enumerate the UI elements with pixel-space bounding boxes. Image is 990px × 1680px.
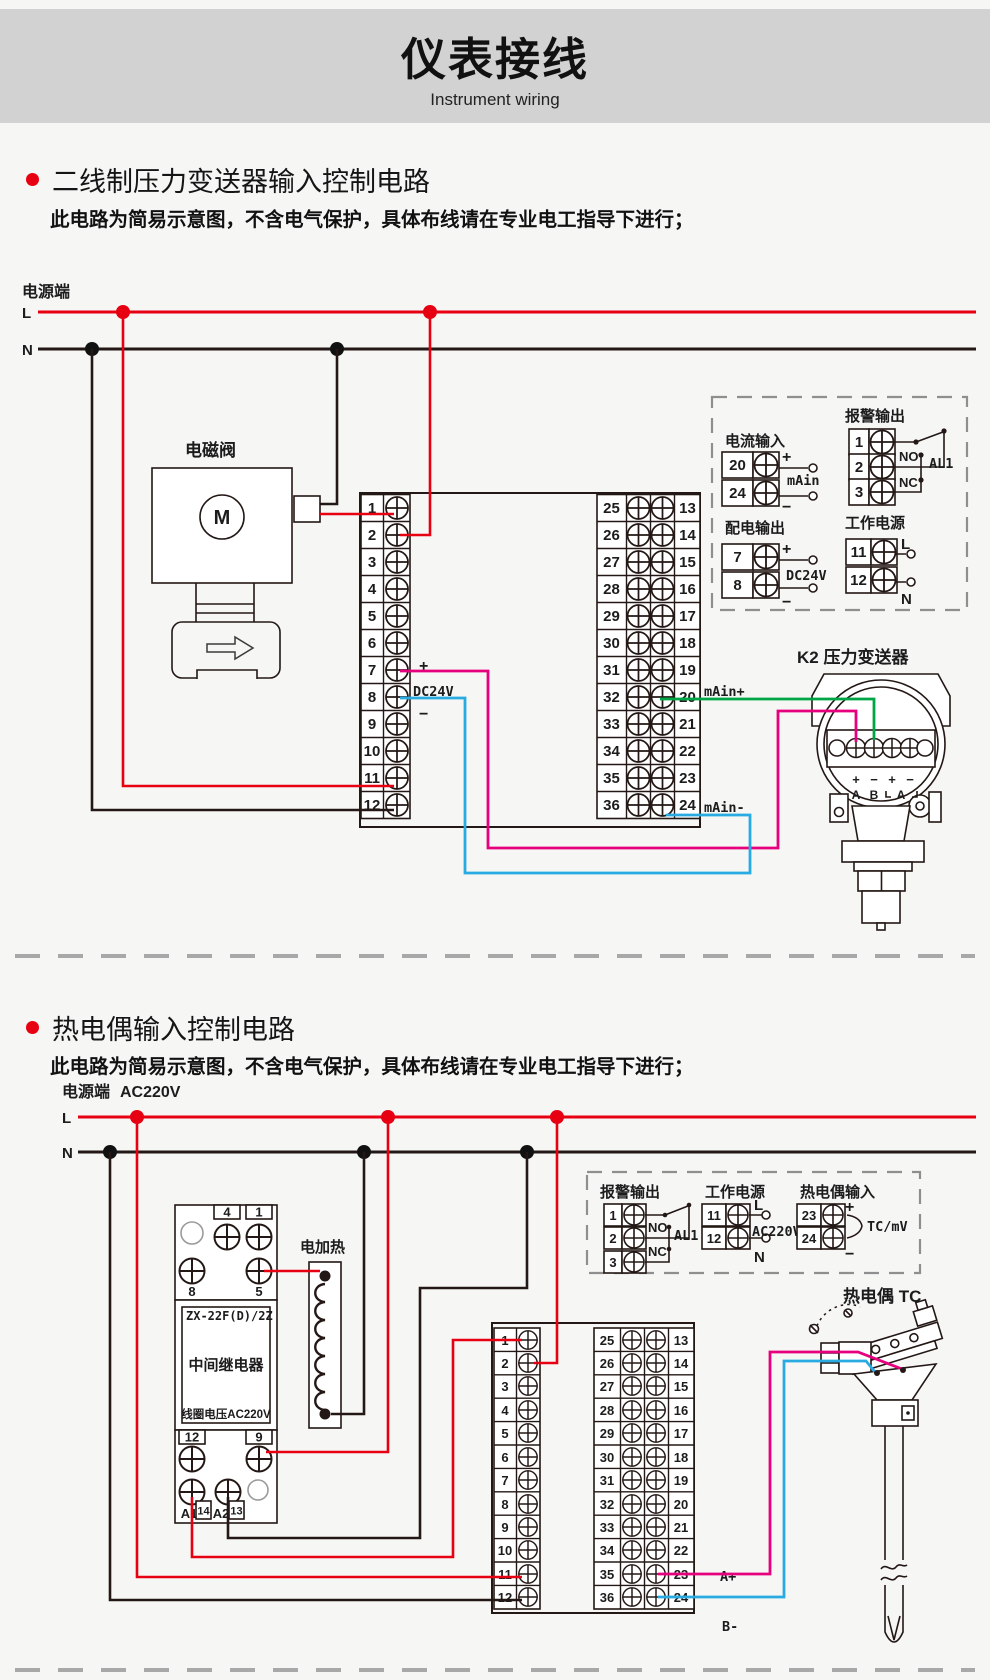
group-title: 热电偶输入 — [800, 1183, 875, 1201]
terminal-number: 5 — [368, 608, 376, 625]
power-output-group: 配电输出 7 8 + DC24V − — [722, 519, 827, 611]
terminal-number: 28 — [600, 1403, 614, 1418]
relay-terminal: 13 — [230, 1506, 242, 1518]
group-title: 配电输出 — [725, 519, 785, 537]
solenoid-connector — [294, 496, 320, 522]
tx-polarity: + — [852, 772, 860, 787]
wiring-diagram-canvas: 电源端 L N 电磁阀 M 1 2 3 4 5 6 — [0, 0, 990, 1680]
terminal-number: 11 — [498, 1567, 512, 1582]
instrument-2: 1 2 3 4 5 6 7 8 9 10 11 12 25 26 27 28 — [492, 1323, 738, 1635]
pressure-transmitter: K2 压力变送器 + − + − A B A — [797, 647, 950, 930]
terminal-number: 35 — [603, 770, 620, 787]
section-2-title: 热电偶输入控制电路 — [52, 1008, 295, 1047]
tc-input-group: 热电偶输入 23 24 + − TC/mV — [797, 1183, 908, 1263]
terminal-number: 8 — [733, 577, 741, 594]
terminal-number: 4 — [501, 1403, 509, 1418]
line-l-label: L — [62, 1110, 71, 1127]
n-label: N — [901, 591, 912, 608]
relay-terminal: 9 — [255, 1430, 262, 1445]
terminal-number: 18 — [674, 1450, 688, 1465]
solenoid-valve: 电磁阀 M — [152, 440, 320, 680]
terminal-number: 6 — [501, 1450, 508, 1465]
terminal-number: 2 — [609, 1231, 616, 1246]
intermediate-relay: 4 1 8 5 ZX-22F(D)/2Z 中间继电器 线圈电压AC220V 12… — [175, 1205, 277, 1524]
tx-terminal-letter: A — [852, 788, 861, 802]
terminal-number: 31 — [603, 662, 620, 679]
terminal-number: 1 — [855, 434, 863, 451]
terminal-number: 21 — [674, 1520, 688, 1535]
dc24v-plus: + — [419, 658, 428, 675]
terminal-number: 34 — [603, 743, 620, 760]
terminal-strip-right: 25 26 27 28 29 30 31 32 33 34 35 36 13 1… — [594, 1328, 694, 1609]
polarity: + — [782, 541, 791, 558]
terminal-number: 11 — [851, 544, 867, 561]
terminal-number: 36 — [603, 797, 620, 814]
wire-n-to-solenoid — [320, 349, 337, 504]
terminal-number: 24 — [679, 797, 696, 814]
terminal-number: 19 — [679, 662, 696, 679]
terminal-number: 24 — [802, 1231, 817, 1246]
terminal-number: 23 — [679, 770, 696, 787]
terminal-number: 11 — [364, 770, 380, 787]
relay-terminal: 14 — [197, 1506, 210, 1518]
no-label: NO — [899, 449, 919, 464]
probe-v-mark — [888, 1616, 900, 1640]
terminal-number: 27 — [600, 1379, 614, 1394]
dc24v-minus: − — [419, 706, 428, 723]
terminal-number: 14 — [674, 1356, 689, 1371]
section-2-note: 此电路为简易示意图，不含电气保护，具体布线请在专业电工指导下进行； — [50, 1050, 694, 1079]
terminal-number: 16 — [674, 1403, 688, 1418]
terminal-number: 25 — [600, 1333, 614, 1348]
probe-break-symbol — [881, 1565, 907, 1580]
terminal-number: 12 — [498, 1590, 512, 1605]
section-2-header: 热电偶输入控制电路 — [26, 1008, 295, 1047]
terminal-number: 22 — [679, 743, 696, 760]
terminal-number: 32 — [600, 1497, 614, 1512]
header-band: 仪表接线 Instrument wiring — [0, 9, 990, 123]
thermocouple: 热电偶 TC — [810, 1286, 945, 1642]
tc-probe — [885, 1426, 903, 1560]
terminal-number: 7 — [501, 1473, 508, 1488]
power-terminal-label: 电源端 — [22, 282, 70, 301]
terminal-number: 10 — [498, 1543, 512, 1558]
terminal-strip-left: 1 2 3 4 5 6 7 8 9 10 11 12 — [494, 1328, 540, 1609]
l-label: L — [901, 536, 910, 553]
section-1-header: 二线制压力变送器输入控制电路 — [26, 160, 430, 199]
bullet-icon — [26, 1021, 39, 1034]
alarm-name: AL1 — [674, 1228, 698, 1244]
ac220v-label: AC220V — [120, 1084, 181, 1101]
tx-polarity: + — [888, 772, 896, 787]
current-input-group: 电流输入 20 24 + mAin − — [722, 432, 820, 516]
cap-chain — [817, 1304, 860, 1326]
terminal-number: 29 — [600, 1426, 614, 1441]
relay-terminal: 12 — [185, 1430, 199, 1445]
terminal-number: 30 — [603, 635, 620, 652]
terminal-number: 31 — [600, 1473, 614, 1488]
heater-label: 电加热 — [300, 1238, 345, 1256]
terminal-number: 12 — [364, 797, 381, 814]
terminal-number: 17 — [674, 1426, 688, 1441]
terminal-number: 13 — [679, 500, 696, 517]
terminal-number: 2 — [368, 527, 376, 544]
power-rails-1: 电源端 L N — [22, 282, 976, 359]
terminal-number: 5 — [501, 1426, 508, 1441]
polarity: + — [782, 449, 791, 466]
line-l-label: L — [22, 305, 31, 322]
alarm-output-group: 报警输出 1 2 3 NO NC AL1 — [600, 1183, 698, 1273]
terminal-number: 25 — [603, 500, 620, 517]
relay-terminal: A1 — [181, 1506, 198, 1521]
polarity: − — [782, 499, 791, 516]
no-label: NO — [648, 1220, 668, 1235]
terminal-number: 15 — [674, 1379, 688, 1394]
terminal-number: 15 — [679, 554, 696, 571]
terminal-number: 2 — [501, 1356, 508, 1371]
terminal-number: 8 — [368, 689, 376, 706]
motor-letter: M — [214, 507, 231, 529]
relay-name: 中间继电器 — [188, 1356, 264, 1374]
voltage-label: AC220V — [752, 1224, 801, 1240]
alarm-name: AL1 — [929, 456, 953, 472]
terminal-number: 19 — [674, 1473, 688, 1488]
terminal-number: 33 — [600, 1520, 614, 1535]
terminal-number: 4 — [368, 581, 377, 598]
nc-label: NC — [899, 475, 918, 490]
transmitter-label: K2 压力变送器 — [797, 647, 909, 667]
relay-terminal: 5 — [255, 1284, 262, 1299]
signal-label: TC/mV — [867, 1219, 908, 1235]
diagram-thermocouple-circuit: 电源端 AC220V L N 4 1 8 5 ZX-22F(D)/2Z 中间继电… — [62, 1082, 976, 1642]
bullet-icon — [26, 173, 39, 186]
group-title: 工作电源 — [845, 514, 905, 532]
polarity: − — [782, 594, 791, 611]
terminal-number: 26 — [600, 1356, 614, 1371]
terminal-number: 10 — [364, 743, 381, 760]
io-legend-box-1: 电流输入 20 24 + mAin − 报警输出 1 2 3 NO NC — [712, 397, 967, 611]
tx-terminal-letter: B — [870, 788, 879, 802]
transmitter-neck — [852, 806, 910, 841]
terminal-number: 7 — [368, 662, 376, 679]
terminal-number: 32 — [603, 689, 620, 706]
electric-heater: 电加热 — [300, 1238, 345, 1428]
page-subtitle: Instrument wiring — [430, 90, 559, 110]
terminal-number: 24 — [729, 485, 746, 502]
polarity: − — [845, 1246, 854, 1263]
relay-terminal: 8 — [188, 1284, 195, 1299]
signal-label: mAin — [787, 473, 820, 489]
terminal-number: 9 — [368, 716, 376, 733]
flow-arrow-icon — [207, 637, 253, 659]
terminal-number: 3 — [609, 1255, 616, 1270]
wire-l-to-t2 — [534, 1117, 557, 1363]
relay-terminal: 1 — [255, 1205, 262, 1220]
power-terminal-label: 电源端 — [62, 1082, 110, 1101]
terminal-number: 34 — [600, 1543, 615, 1558]
nc-label: NC — [648, 1244, 667, 1259]
terminal-number: 7 — [733, 549, 741, 566]
line-n-label: N — [62, 1145, 73, 1162]
terminal-number: 12 — [850, 572, 867, 589]
tc-bracket — [847, 1215, 862, 1238]
terminal-number: 11 — [707, 1208, 721, 1223]
alarm-output-group: 报警输出 1 2 3 NO NC AL1 — [845, 407, 953, 505]
valve-neck — [196, 583, 254, 622]
tx-polarity: − — [906, 772, 914, 787]
terminal-number: 3 — [501, 1379, 508, 1394]
solenoid-label: 电磁阀 — [185, 440, 236, 460]
signal-label: DC24V — [786, 568, 827, 584]
terminal-number: 23 — [802, 1208, 816, 1223]
line-n-label: N — [22, 342, 33, 359]
group-title: 报警输出 — [600, 1183, 660, 1201]
terminal-number: 21 — [679, 716, 696, 733]
terminal-number: 14 — [679, 527, 696, 544]
terminal-number: 20 — [674, 1497, 688, 1512]
terminal-number: 13 — [674, 1333, 688, 1348]
work-power-group: 工作电源 11 12 L AC220V N — [702, 1183, 801, 1266]
terminal-number: 12 — [707, 1231, 721, 1246]
terminal-number: 22 — [674, 1543, 688, 1558]
terminal-number: 27 — [603, 554, 620, 571]
terminal-number: 9 — [501, 1520, 508, 1535]
polarity: + — [845, 1199, 854, 1216]
terminal-number: 16 — [679, 581, 696, 598]
terminal-number: 29 — [603, 608, 620, 625]
l-label: L — [754, 1197, 763, 1214]
terminal-number: 8 — [501, 1497, 508, 1512]
terminal-number: 35 — [600, 1567, 614, 1582]
group-title: 报警输出 — [845, 407, 905, 425]
relay-terminal: 4 — [223, 1205, 231, 1220]
terminal-number: 20 — [679, 689, 696, 706]
terminal-number: 1 — [609, 1208, 616, 1223]
diagram-pressure-transmitter-circuit: 电源端 L N 电磁阀 M 1 2 3 4 5 6 — [22, 282, 976, 930]
terminal-number: 20 — [729, 457, 746, 474]
terminal-number: 2 — [855, 459, 863, 476]
work-power-group: 工作电源 11 12 L N — [845, 514, 915, 608]
n-label: N — [754, 1249, 765, 1266]
terminal-number: 33 — [603, 716, 620, 733]
tx-terminal-letter: A — [897, 788, 906, 802]
terminal-number: 3 — [368, 554, 376, 571]
terminal-number: 28 — [603, 581, 620, 598]
power-rails-2: 电源端 AC220V L N — [62, 1082, 976, 1162]
thermocouple-label: 热电偶 TC — [843, 1286, 921, 1306]
terminal-number: 17 — [679, 608, 696, 625]
tc-b-minus-label: B- — [722, 1619, 738, 1635]
io-legend-box-2: 报警输出 1 2 3 NO NC AL1 工作电源 11 12 L AC220V — [587, 1172, 920, 1273]
relay-coil-voltage: 线圈电压AC220V — [181, 1407, 271, 1421]
page-title: 仪表接线 — [401, 23, 589, 88]
terminal-strip-right: 25 26 27 28 29 30 31 32 33 34 35 36 13 1… — [597, 495, 700, 819]
section-1-title: 二线制压力变送器输入控制电路 — [52, 160, 430, 199]
terminal-number: 6 — [368, 635, 376, 652]
terminal-number: 3 — [855, 484, 863, 501]
tc-probe-tip — [885, 1585, 903, 1642]
terminal-number: 36 — [600, 1590, 614, 1605]
terminal-number: 30 — [600, 1450, 614, 1465]
terminal-strip-left: 1 2 3 4 5 6 7 8 9 10 11 12 — [361, 495, 410, 819]
terminal-number: 26 — [603, 527, 620, 544]
group-title: 电流输入 — [725, 432, 785, 450]
section-1-note: 此电路为简易示意图，不含电气保护，具体布线请在专业电工指导下进行； — [50, 203, 694, 232]
instrument-1: 1 2 3 4 5 6 7 8 9 10 11 12 25 26 27 28 — [360, 493, 745, 827]
tx-polarity: − — [870, 772, 878, 787]
terminal-number: 18 — [679, 635, 696, 652]
tc-a-plus-label: A+ — [720, 1569, 736, 1585]
relay-model: ZX-22F(D)/2Z — [186, 1309, 273, 1323]
